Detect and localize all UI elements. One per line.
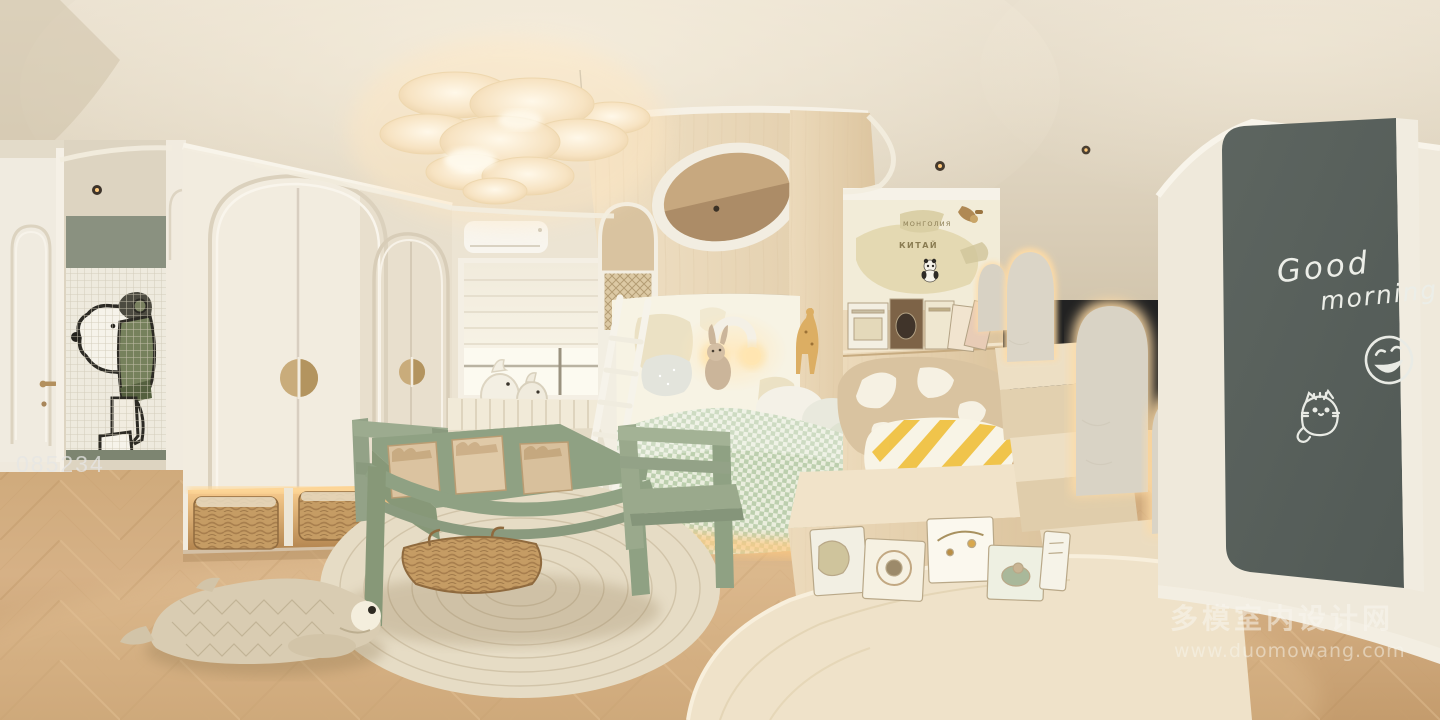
padded-arch <box>1004 248 1057 362</box>
mongolia-label: МОНГОЛИЯ <box>903 220 952 228</box>
site-name-watermark: 多模室内设计网 <box>1170 602 1394 635</box>
hallway-niche <box>64 140 186 470</box>
site-url-watermark: www.duomowang.com <box>1174 640 1406 662</box>
cloud-chandelier <box>348 37 668 227</box>
shelf-books <box>848 299 996 352</box>
wicker-basket <box>194 497 278 549</box>
hallway-door <box>0 140 64 472</box>
chalkboard: Good morning! <box>1222 118 1440 592</box>
china-label: КИТАЙ <box>899 239 938 250</box>
padded-arch <box>1072 300 1152 496</box>
padded-arch <box>976 262 1008 332</box>
photo-id-watermark: 085234 <box>16 451 105 477</box>
panorama-photo: МОНГОЛИЯ КИТАЙ <box>0 0 1440 720</box>
site-watermark: 多模室内设计网 www.duomowang.com <box>1170 602 1406 662</box>
sage-accent-band <box>66 216 170 268</box>
